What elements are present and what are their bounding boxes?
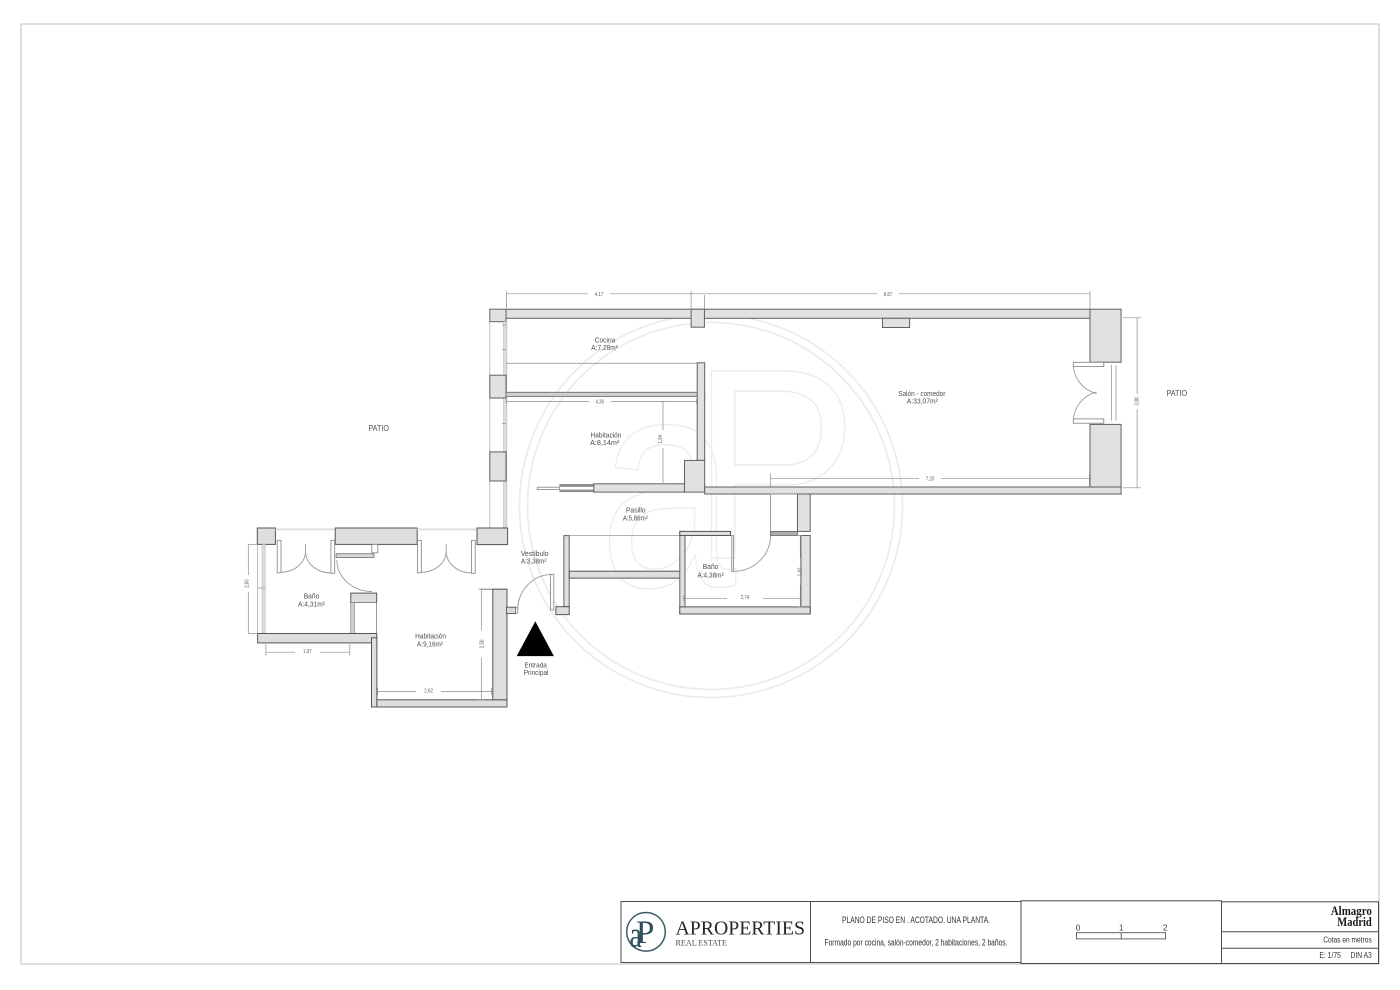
svg-text:A:3,38m²: A:3,38m²: [521, 556, 547, 565]
svg-text:Principal: Principal: [524, 668, 549, 677]
svg-text:A:4,31m²: A:4,31m²: [298, 600, 325, 609]
svg-text:1: 1: [1119, 923, 1123, 932]
svg-text:PATIO: PATIO: [1167, 388, 1188, 398]
svg-text:1,94: 1,94: [658, 435, 664, 444]
svg-text:P: P: [636, 915, 654, 951]
svg-text:A:7,28m²: A:7,28m²: [591, 343, 618, 352]
svg-text:3,80: 3,80: [1135, 397, 1141, 406]
svg-text:Madrid: Madrid: [1337, 914, 1372, 929]
svg-text:A:9,16m²: A:9,16m²: [417, 639, 443, 648]
svg-text:A:8,14m²: A:8,14m²: [590, 438, 620, 447]
svg-text:A:33,07m²: A:33,07m²: [907, 396, 939, 405]
svg-text:2,62: 2,62: [424, 689, 433, 695]
svg-text:1,92: 1,92: [798, 568, 804, 577]
svg-text:E: 1/75: E: 1/75: [1319, 951, 1341, 960]
svg-text:PATIO: PATIO: [368, 423, 389, 433]
svg-text:4,30: 4,30: [596, 399, 605, 405]
svg-text:2: 2: [1163, 923, 1167, 932]
svg-text:Cotas en metros: Cotas en metros: [1323, 936, 1372, 945]
svg-text:7,20: 7,20: [926, 477, 935, 483]
svg-text:Formado por cocina, salón-come: Formado por cocina, salón-comedor, 2 hab…: [825, 938, 1008, 948]
svg-text:APROPERTIES: APROPERTIES: [676, 918, 806, 940]
svg-text:0: 0: [1076, 923, 1081, 932]
svg-text:DIN A3: DIN A3: [1351, 951, 1373, 960]
svg-text:2,74: 2,74: [741, 595, 750, 601]
svg-text:4,17: 4,17: [595, 292, 604, 298]
svg-text:A:5,86m²: A:5,86m²: [623, 513, 648, 522]
svg-text:1,97: 1,97: [303, 649, 312, 655]
svg-text:2,06: 2,06: [245, 579, 251, 588]
svg-text:PLANO DE PISO EN . ACOTADO. UN: PLANO DE PISO EN . ACOTADO. UNA PLANTA.: [842, 915, 990, 925]
svg-text:2,50: 2,50: [479, 640, 485, 649]
svg-text:8,87: 8,87: [884, 292, 893, 298]
svg-text:A:4,38m²: A:4,38m²: [697, 571, 724, 580]
svg-text:REAL ESTATE: REAL ESTATE: [676, 938, 728, 947]
